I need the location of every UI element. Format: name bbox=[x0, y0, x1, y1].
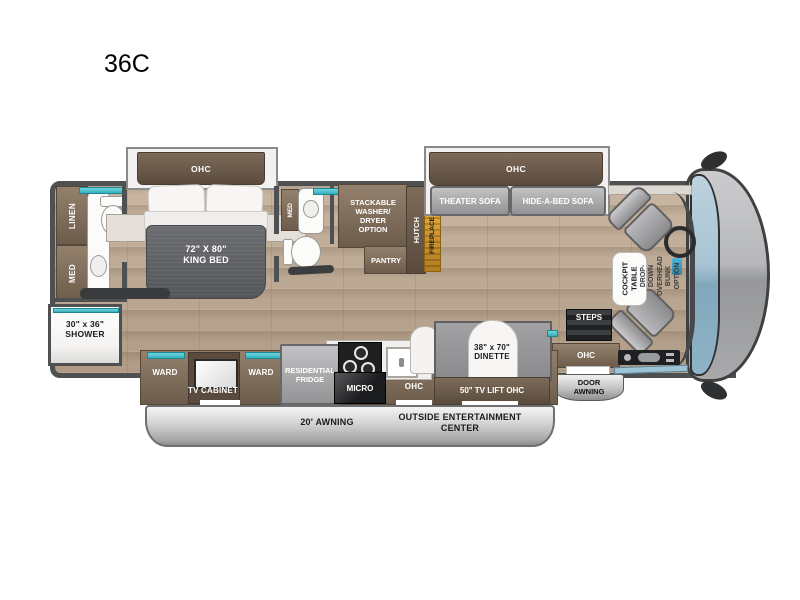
linen-cabinet: LINEN bbox=[56, 186, 88, 245]
dash-top-counter bbox=[608, 185, 692, 195]
washer-dryer-cabinet: STACKABLE WASHER/ DRYER OPTION bbox=[338, 184, 408, 248]
sofa-ohc-cabinet: OHC bbox=[429, 152, 603, 186]
entertainment-text: OUTSIDE ENTERTAINMENT CENTER bbox=[395, 412, 525, 433]
steps-label: STEPS bbox=[576, 313, 602, 322]
entry-ohc-label: OHC bbox=[577, 351, 595, 360]
bedroom-ohc-cabinet: OHC bbox=[137, 152, 265, 185]
audio-knob-1 bbox=[624, 354, 631, 361]
fridge-label: RESIDENTIAL FRIDGE bbox=[284, 366, 336, 384]
sofa-slide: OHC THEATER SOFA HIDE-A-BED SOFA bbox=[424, 146, 610, 216]
dash-audio-panel bbox=[618, 350, 680, 365]
ward-right-label: WARD bbox=[238, 368, 284, 377]
patio-awning: 20' AWNING OUTSIDE ENTERTAINMENT CENTER bbox=[145, 405, 555, 447]
door-side-accent bbox=[547, 330, 558, 337]
theater-sofa: THEATER SOFA bbox=[430, 186, 510, 216]
king-bed: 72" X 80" KING BED bbox=[144, 183, 266, 299]
midbath-sink bbox=[303, 200, 319, 218]
bedroom-tv-console bbox=[80, 288, 170, 299]
shower-label: 30" x 36" SHOWER bbox=[51, 319, 119, 339]
model-label: 36C bbox=[104, 50, 150, 79]
shower-accent bbox=[53, 308, 119, 313]
bedroom-ohc-label: OHC bbox=[191, 164, 211, 174]
pantry-label: PANTRY bbox=[371, 256, 401, 265]
ward-left-accent bbox=[147, 352, 185, 359]
awning-label: 20' AWNING bbox=[267, 417, 387, 428]
tv-screen bbox=[194, 359, 238, 389]
bed-type: KING BED bbox=[183, 255, 229, 266]
midbath-med-label: MED bbox=[287, 203, 294, 217]
door-awning: DOOR AWNING bbox=[554, 374, 624, 401]
floorplan-canvas: 36C LINEN MED 30" x 36" SHOWER OHC bbox=[0, 0, 800, 600]
shower-stall: 30" x 36" SHOWER bbox=[48, 304, 122, 366]
faucet bbox=[399, 358, 404, 367]
nightstand-left bbox=[106, 214, 146, 242]
wall-midbath-left2 bbox=[274, 256, 279, 282]
washer-dryer-label: STACKABLE WASHER/ DRYER OPTION bbox=[348, 198, 398, 234]
ward-left-label: WARD bbox=[142, 368, 188, 377]
rear-counter-accent bbox=[79, 187, 123, 194]
tv-lift-label: 50" TV LIFT OHC bbox=[454, 386, 530, 396]
rear-bath-sink bbox=[90, 255, 107, 277]
pantry-cabinet: PANTRY bbox=[364, 246, 408, 274]
hutch-label: HUTCH bbox=[412, 217, 421, 243]
door-awning-label: DOOR AWNING bbox=[565, 379, 613, 396]
microwave: MICRO bbox=[334, 372, 386, 404]
ward-right-accent bbox=[245, 352, 283, 359]
dinette-size: 38" x 70" bbox=[474, 343, 510, 352]
side-mirror-bottom bbox=[698, 378, 730, 404]
bunk-option-note: DROP-DOWN OVERHEAD BUNK OPTION bbox=[644, 234, 678, 318]
dinette-name: DINETTE bbox=[474, 352, 510, 361]
shower-name: SHOWER bbox=[65, 329, 104, 339]
residential-fridge: RESIDENTIAL FRIDGE bbox=[280, 344, 340, 405]
shower-size: 30" x 36" bbox=[66, 319, 104, 329]
entry-ohc: OHC bbox=[552, 343, 620, 368]
dinette-label: 38" x 70" DINETTE bbox=[469, 343, 515, 362]
cockpit-table-label: COCKPIT TABLE bbox=[621, 262, 638, 296]
audio-knob-4 bbox=[666, 359, 674, 362]
dinette-table: 38" x 70" DINETTE bbox=[468, 320, 518, 380]
hide-a-bed-sofa: HIDE-A-BED SOFA bbox=[510, 186, 606, 216]
entertainment-label: OUTSIDE ENTERTAINMENT CENTER bbox=[395, 412, 525, 433]
bunk-option-label: DROP-DOWN OVERHEAD BUNK OPTION bbox=[640, 256, 682, 296]
burner-1 bbox=[354, 346, 368, 360]
kitchen-ohc-label: OHC bbox=[390, 382, 438, 391]
audio-knob-3 bbox=[666, 353, 674, 356]
bed-size: 72" X 80" bbox=[185, 244, 226, 255]
midbath-med-cabinet: MED bbox=[281, 189, 299, 231]
tv-cabinet-label: TV CABINET bbox=[178, 386, 248, 395]
sofa-ohc-label: OHC bbox=[506, 164, 526, 174]
tv-cabinet bbox=[188, 352, 240, 404]
hide-a-bed-sofa-label: HIDE-A-BED SOFA bbox=[522, 197, 593, 206]
midbath-toilet-bowl bbox=[291, 236, 321, 268]
micro-label: MICRO bbox=[347, 384, 374, 393]
audio-knob-2 bbox=[638, 353, 660, 362]
theater-sofa-label: THEATER SOFA bbox=[439, 197, 500, 206]
wall-midbath-left bbox=[274, 186, 279, 234]
entry-steps: STEPS bbox=[566, 309, 612, 341]
fireplace-label: FIREPLACE bbox=[429, 217, 436, 254]
bed-label: 72" X 80" KING BED bbox=[147, 244, 265, 265]
rear-med-label: MED bbox=[68, 264, 77, 283]
linen-label: LINEN bbox=[68, 203, 77, 229]
hutch-cabinet: HUTCH bbox=[406, 186, 426, 274]
